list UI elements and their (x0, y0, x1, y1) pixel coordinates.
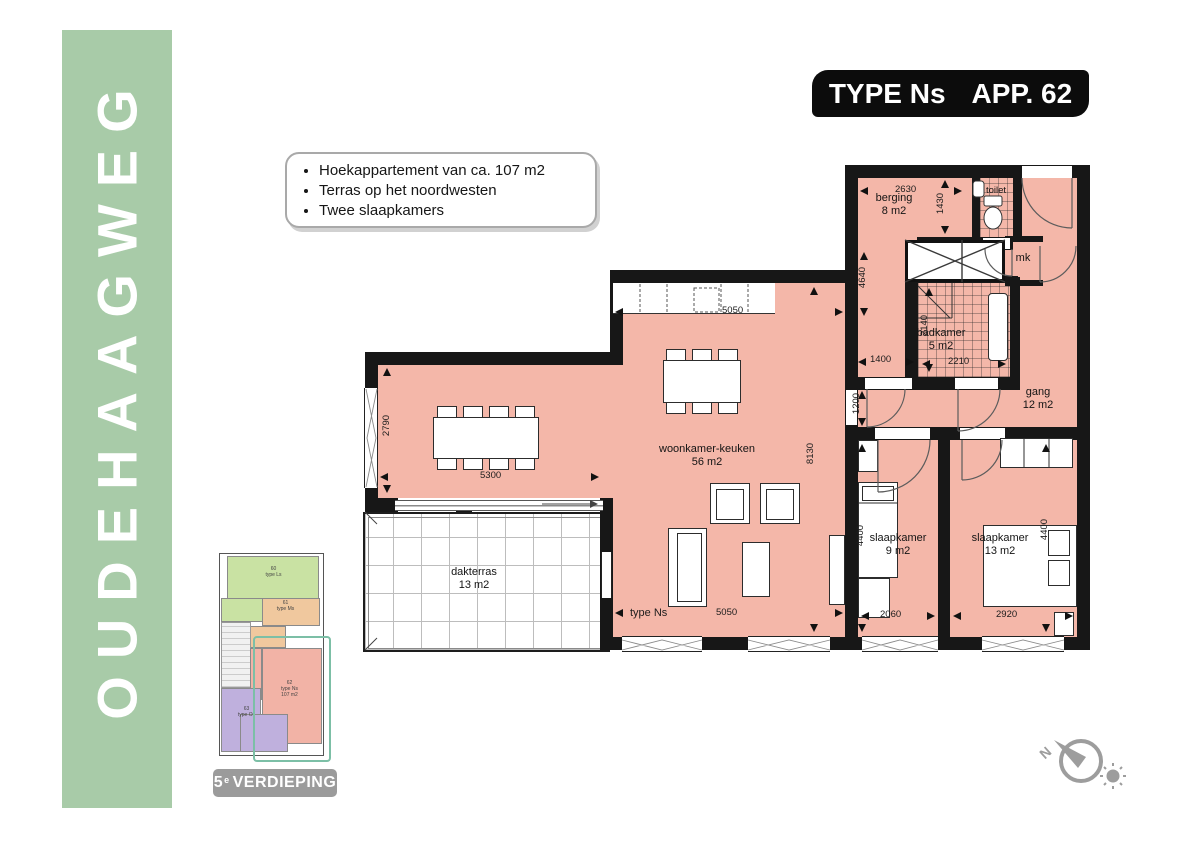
mini-unit-60 (227, 556, 319, 600)
dim-arrow (810, 624, 818, 632)
pillow (862, 486, 894, 501)
mini-unit-label-61: 61type Ms (258, 600, 313, 612)
room-label-toilet: toilet (977, 184, 1015, 197)
dim-label: 4400 (1039, 519, 1050, 540)
dim-arrow (835, 609, 843, 617)
entrance-door-opening (1022, 166, 1072, 178)
dim-arrow (922, 360, 930, 368)
floor-number: 5 (214, 774, 223, 792)
type-marker: type Ns (630, 607, 667, 619)
dim-label: 2060 (880, 609, 901, 620)
armchair (760, 483, 800, 524)
terrace-door (601, 552, 612, 598)
dim-arrow (906, 358, 914, 366)
room-label-badkamer: badkamer5 m2 (908, 327, 974, 353)
dim-arrow (383, 485, 391, 493)
room-label-dakterras: dakterras13 m2 (438, 566, 510, 592)
dim-label: 5300 (480, 470, 501, 481)
floor-name: VERDIEPING (233, 774, 337, 792)
dim-arrow (858, 418, 866, 426)
dim-arrow (615, 609, 623, 617)
dim-arrow (591, 473, 599, 481)
room-label-slaapkamer1: slaapkamer9 m2 (866, 532, 930, 558)
dim-label: 1400 (870, 354, 891, 365)
tv-cabinet (829, 535, 845, 605)
dim-arrow (925, 288, 933, 296)
wall (938, 427, 950, 650)
floor-ordinal: e (224, 775, 230, 785)
coffee-table (742, 542, 770, 597)
room-label-gang: gang12 m2 (1010, 386, 1066, 412)
dim-arrow (383, 368, 391, 376)
armchair-seat (766, 489, 794, 520)
chair (666, 349, 686, 361)
dim-label: 8130 (805, 443, 816, 464)
armchair-seat (716, 489, 744, 520)
chair (515, 406, 535, 418)
wardrobe (1000, 438, 1073, 468)
door-opening (865, 378, 912, 389)
chair (463, 406, 483, 418)
wall (1005, 280, 1043, 286)
chair (692, 349, 712, 361)
dim-arrow (954, 187, 962, 195)
room-label-woonkamer: woonkamer-keuken56 m2 (658, 443, 756, 469)
dim-arrow (941, 180, 949, 188)
dim-arrow (835, 308, 843, 316)
shaft (905, 240, 1005, 282)
chair (437, 406, 457, 418)
dim-arrow (858, 624, 866, 632)
wall (365, 498, 398, 512)
dim-label: 5050 (722, 305, 743, 316)
dim-arrow (860, 252, 868, 260)
dim-arrow (941, 226, 949, 234)
dim-arrow (810, 287, 818, 295)
room-label-mk: mk (1008, 252, 1038, 265)
sofa-seat (677, 533, 702, 602)
dim-label: 5050 (716, 607, 737, 618)
terrace-sliding-door (395, 500, 603, 511)
dim-label: 2920 (996, 609, 1017, 620)
floorplan-drawing: 2630 1430 4640 2140 2210 1400 1200 5050 … (0, 0, 1200, 848)
window (862, 636, 938, 652)
dim-label: 2790 (381, 415, 392, 436)
door-opening (875, 428, 930, 439)
dim-arrow (927, 612, 935, 620)
dim-label: 4400 (855, 525, 866, 546)
dim-label: 1430 (935, 193, 946, 214)
floorplan-sheet: OUDEHAAGWEG TYPE Ns APP. 62 Hoekappartem… (0, 0, 1200, 848)
window (364, 388, 378, 488)
chair (692, 402, 712, 414)
dim-arrow (380, 473, 388, 481)
chair (463, 458, 483, 470)
dim-label: 1200 (851, 393, 862, 414)
armchair (710, 483, 750, 524)
dim-arrow (1042, 624, 1050, 632)
window (982, 636, 1064, 652)
wall (1010, 277, 1020, 390)
sofa (668, 528, 707, 607)
wall (1005, 236, 1043, 242)
chair (718, 349, 738, 361)
dining-table (663, 360, 741, 403)
highlight-unit-62 (253, 636, 331, 762)
pillow (1048, 530, 1070, 556)
wall (610, 270, 858, 283)
chair (666, 402, 686, 414)
window (748, 636, 830, 652)
room-label-berging: berging8 m2 (862, 192, 926, 218)
chair (437, 458, 457, 470)
floor-level-badge: 5e VERDIEPING (213, 769, 337, 797)
kitchen-counter (613, 283, 775, 314)
dim-arrow (858, 444, 866, 452)
chair (489, 458, 509, 470)
mini-unit-60 (221, 598, 263, 622)
wall (845, 165, 858, 270)
dim-arrow (615, 308, 623, 316)
door-opening (955, 378, 998, 389)
chair (489, 406, 509, 418)
wall (365, 352, 623, 365)
dim-arrow (1065, 612, 1073, 620)
dim-label: 2210 (948, 356, 969, 367)
door-opening (960, 428, 1005, 439)
dim-arrow (858, 358, 866, 366)
mini-floorplan: 60type Ls 61type Ms 62type Ns107 m2 63ty… (212, 545, 337, 770)
dim-arrow (998, 360, 1006, 368)
mini-unit-label-60: 60type Ls (246, 566, 301, 578)
chair (515, 458, 535, 470)
window (622, 636, 702, 652)
wall (845, 270, 858, 637)
dim-arrow (1042, 444, 1050, 452)
room-label-slaapkamer2: slaapkamer13 m2 (968, 532, 1032, 558)
dim-arrow (953, 612, 961, 620)
pillow (1048, 560, 1070, 586)
dim-arrow (861, 612, 869, 620)
dim-arrow (860, 308, 868, 316)
mini-stair-core (221, 622, 251, 688)
dining-table (433, 417, 539, 459)
bathtub (988, 293, 1008, 361)
wall (1077, 165, 1090, 650)
chair (718, 402, 738, 414)
dim-label: 4640 (857, 267, 868, 288)
